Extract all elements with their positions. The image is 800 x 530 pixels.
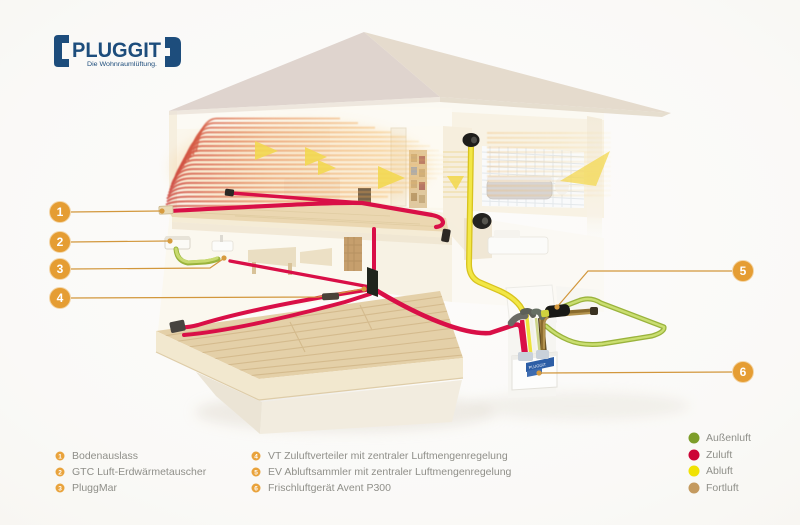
svg-text:5: 5: [254, 469, 258, 476]
svg-text:2: 2: [58, 469, 62, 476]
svg-text:PluggMar: PluggMar: [72, 482, 117, 494]
svg-text:GTC Luft-Erdwärmetauscher: GTC Luft-Erdwärmetauscher: [72, 466, 207, 478]
svg-text:Außenluft: Außenluft: [706, 432, 751, 444]
svg-text:1: 1: [57, 205, 64, 219]
svg-text:1: 1: [58, 453, 62, 460]
svg-text:4: 4: [57, 291, 64, 305]
svg-text:Bodenauslass: Bodenauslass: [72, 450, 138, 462]
svg-text:3: 3: [58, 485, 62, 492]
svg-text:VT Zuluftverteiler mit zentral: VT Zuluftverteiler mit zentraler Luftmen…: [268, 450, 508, 462]
svg-text:3: 3: [57, 262, 64, 276]
svg-text:EV Abluftsammler mit zentraler: EV Abluftsammler mit zentraler Luftmenge…: [268, 466, 512, 478]
svg-text:Zuluft: Zuluft: [706, 449, 732, 461]
svg-text:Abluft: Abluft: [706, 465, 733, 477]
svg-text:Frischluftgerät Avent P300: Frischluftgerät Avent P300: [268, 482, 391, 494]
svg-text:6: 6: [254, 485, 258, 492]
svg-text:2: 2: [57, 235, 64, 249]
svg-text:5: 5: [740, 264, 747, 278]
svg-text:4: 4: [254, 453, 258, 460]
svg-text:PLUGGIT: PLUGGIT: [72, 39, 161, 62]
svg-text:Die Wohnraumlüftung.: Die Wohnraumlüftung.: [87, 61, 157, 68]
svg-text:Fortluft: Fortluft: [706, 482, 739, 494]
svg-text:6: 6: [740, 365, 747, 379]
